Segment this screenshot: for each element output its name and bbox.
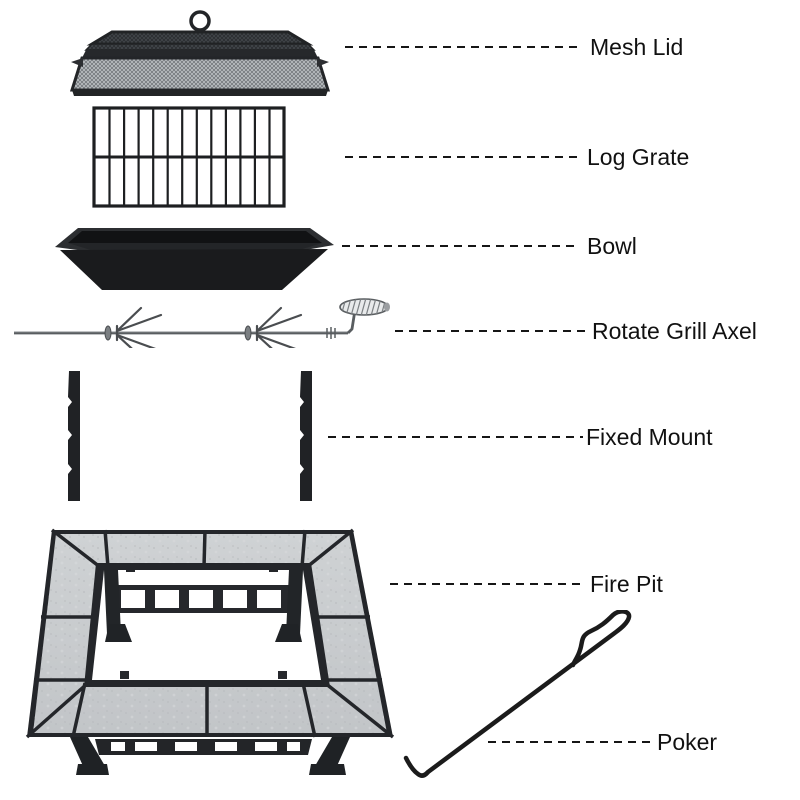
fixed-mount-left-post: [66, 371, 82, 501]
bowl-figure: [48, 220, 340, 292]
part-label-bowl: Bowl: [587, 233, 637, 259]
leader-line: [342, 245, 580, 247]
leader-line: [395, 330, 585, 332]
callout-rotate-grill-axel: Rotate Grill Axel: [395, 318, 757, 344]
callout-log-grate: Log Grate: [345, 144, 689, 170]
fixed-mount-right-post: [298, 371, 314, 501]
callout-poker: Poker: [488, 729, 717, 755]
leader-line: [328, 436, 583, 438]
callout-fixed-mount: Fixed Mount: [328, 424, 713, 450]
mesh-lid-illustration: [70, 6, 330, 98]
parts-diagram: Mesh Lid Log Grate Bowl Rotate Grill Axe…: [0, 0, 800, 800]
log-grate-figure: [92, 106, 286, 208]
part-label-log-grate: Log Grate: [587, 144, 689, 170]
part-label-rotate-grill-axel: Rotate Grill Axel: [592, 318, 757, 344]
callout-bowl: Bowl: [342, 233, 637, 259]
mesh-lid-figure: [70, 6, 330, 98]
leader-line: [345, 156, 580, 158]
part-label-fixed-mount: Fixed Mount: [586, 424, 713, 450]
callout-fire-pit: Fire Pit: [390, 571, 663, 597]
callout-mesh-lid: Mesh Lid: [345, 34, 683, 60]
rotate-grill-axel-figure: [12, 296, 404, 348]
log-grate-illustration: [92, 106, 286, 208]
leader-line: [488, 741, 650, 743]
fire-pit-illustration: [25, 522, 395, 780]
bowl-illustration: [48, 220, 340, 292]
leader-line: [390, 583, 583, 585]
part-label-mesh-lid: Mesh Lid: [590, 34, 683, 60]
leader-line: [345, 46, 583, 48]
part-label-poker: Poker: [657, 729, 717, 755]
fixed-mount-illustration: [298, 371, 314, 501]
fixed-mount-illustration: [66, 371, 82, 501]
poker-figure: [402, 610, 637, 792]
part-label-fire-pit: Fire Pit: [590, 571, 663, 597]
rotate-grill-axel-illustration: [12, 296, 404, 348]
fire-pit-figure: [25, 522, 395, 780]
poker-illustration: [402, 610, 637, 792]
